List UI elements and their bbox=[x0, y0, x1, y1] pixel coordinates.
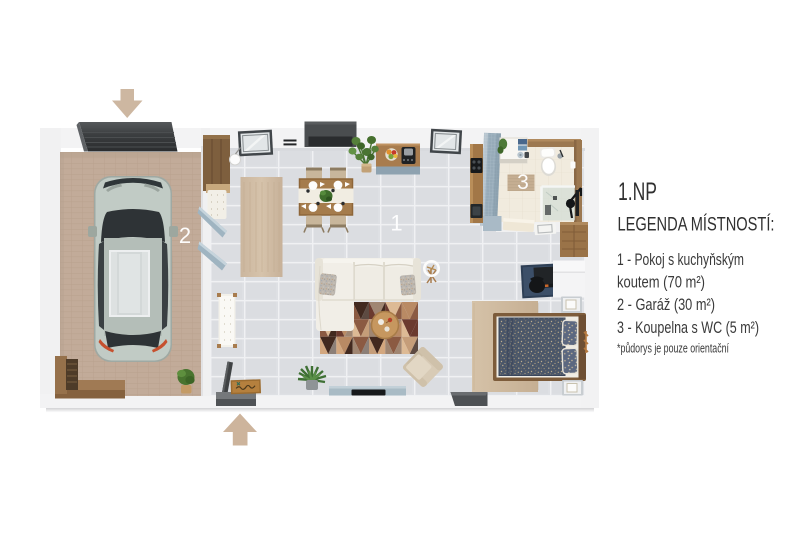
svg-text:1: 1 bbox=[390, 211, 402, 236]
svg-text:3: 3 bbox=[517, 171, 529, 194]
svg-text:*půdorys je pouze orientační: *půdorys je pouze orientační bbox=[617, 341, 729, 356]
svg-text:2: 2 bbox=[179, 223, 191, 248]
svg-text:2 - Garáž (30 m²): 2 - Garáž (30 m²) bbox=[617, 295, 715, 314]
svg-text:1 - Pokoj s kuchyňským: 1 - Pokoj s kuchyňským bbox=[617, 250, 744, 269]
svg-text:1.NP: 1.NP bbox=[618, 178, 657, 206]
svg-text:3 - Koupelna s WC (5 m²): 3 - Koupelna s WC (5 m²) bbox=[617, 318, 759, 337]
svg-text:koutem (70 m²): koutem (70 m²) bbox=[617, 273, 705, 292]
svg-text:LEGENDA MÍSTNOSTÍ:: LEGENDA MÍSTNOSTÍ: bbox=[618, 213, 775, 236]
